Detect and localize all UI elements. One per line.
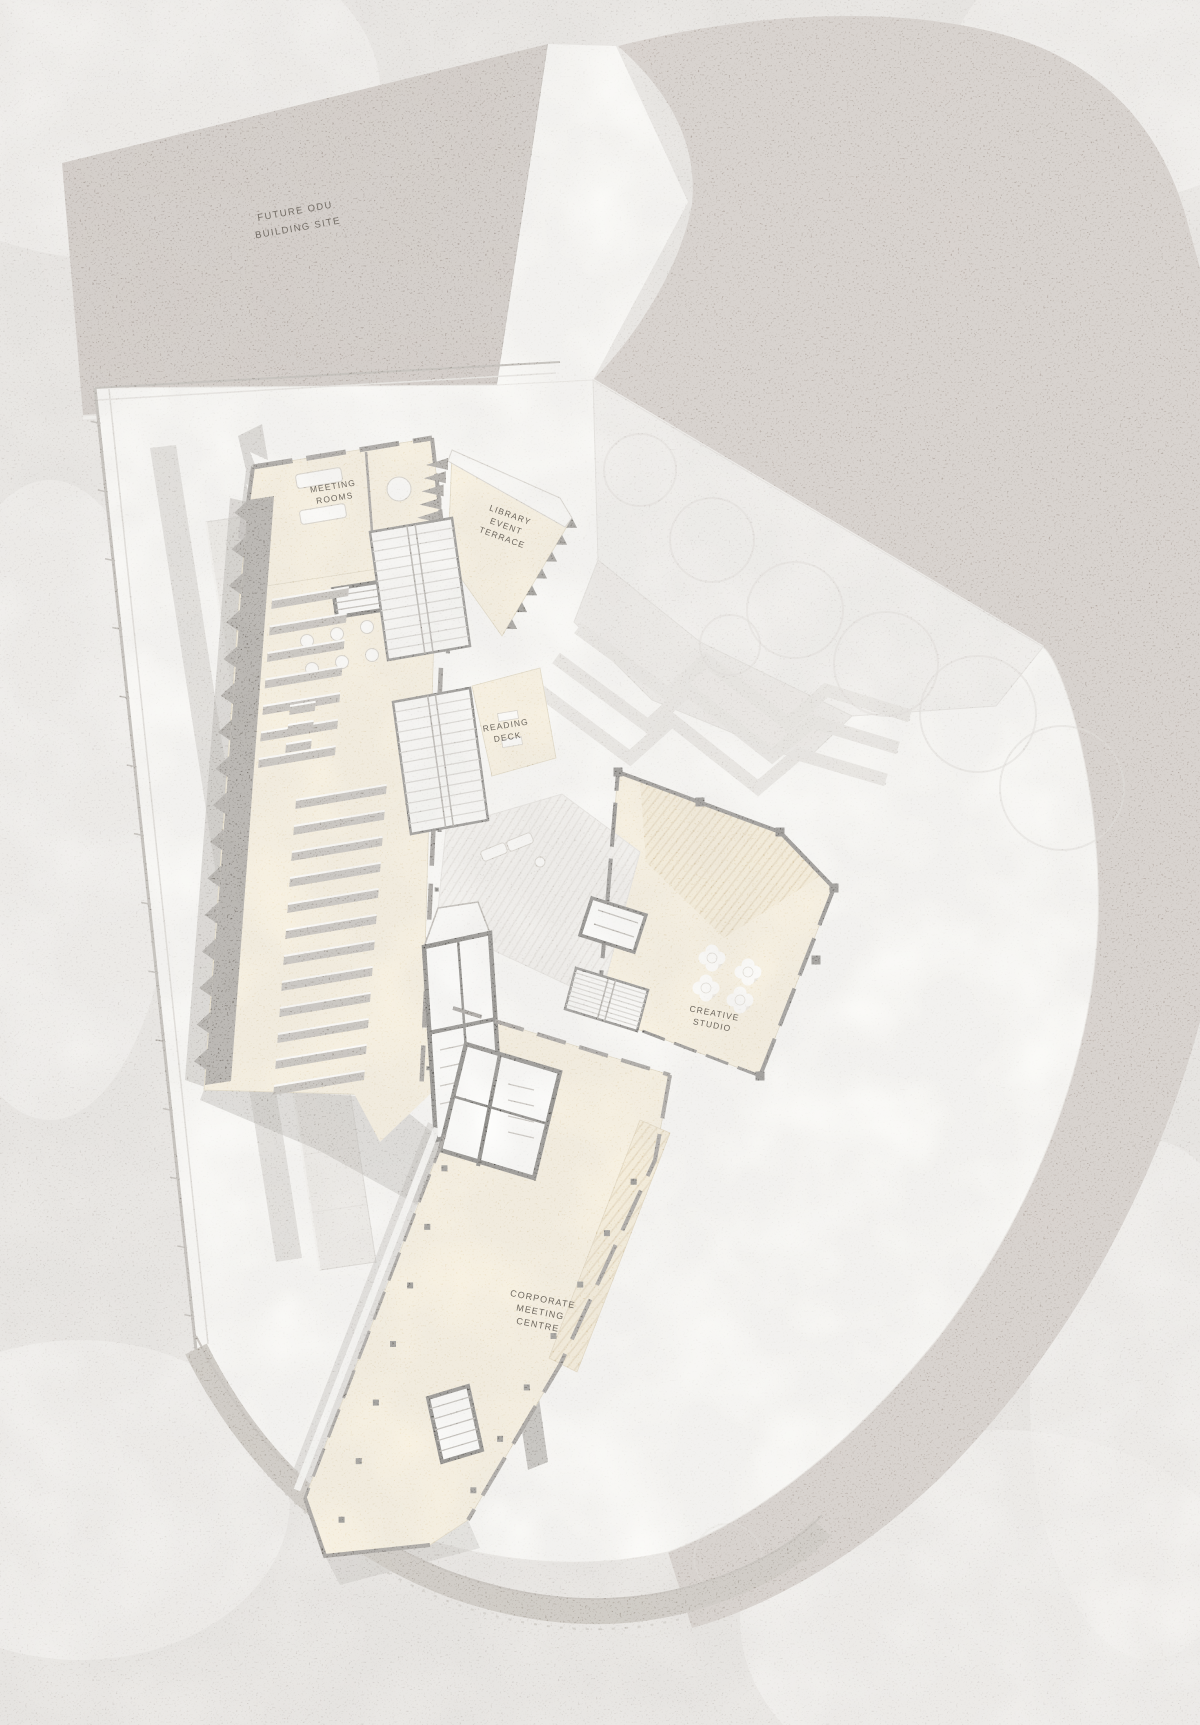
site-plan: FUTURE ODU BUILDING SITE MEETING ROOMS L…	[0, 0, 1200, 1725]
paper-texture-overlay	[0, 0, 1200, 1725]
site-plan-drawing: FUTURE ODU BUILDING SITE MEETING ROOMS L…	[0, 0, 1200, 1725]
